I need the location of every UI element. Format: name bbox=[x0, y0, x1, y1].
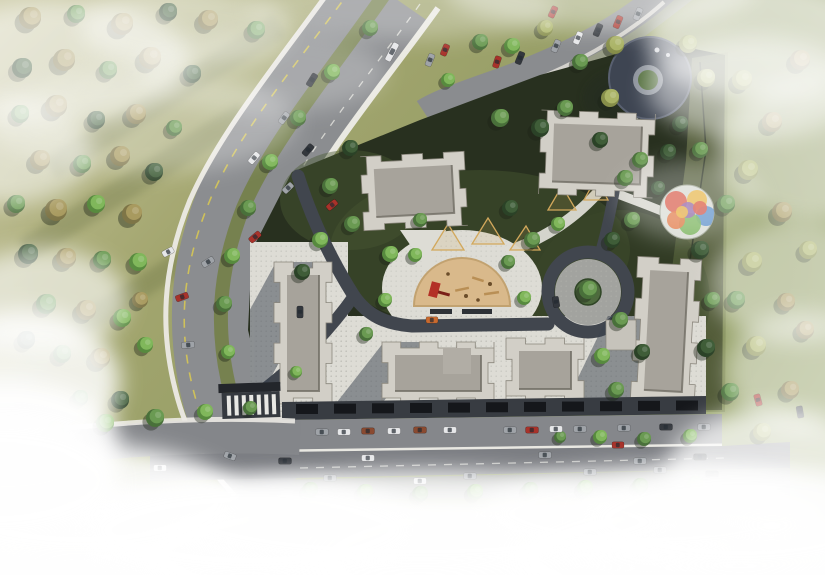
aerial-render-svg bbox=[0, 0, 825, 575]
edge-haze bbox=[0, 0, 825, 575]
site-plan-render bbox=[0, 0, 825, 575]
